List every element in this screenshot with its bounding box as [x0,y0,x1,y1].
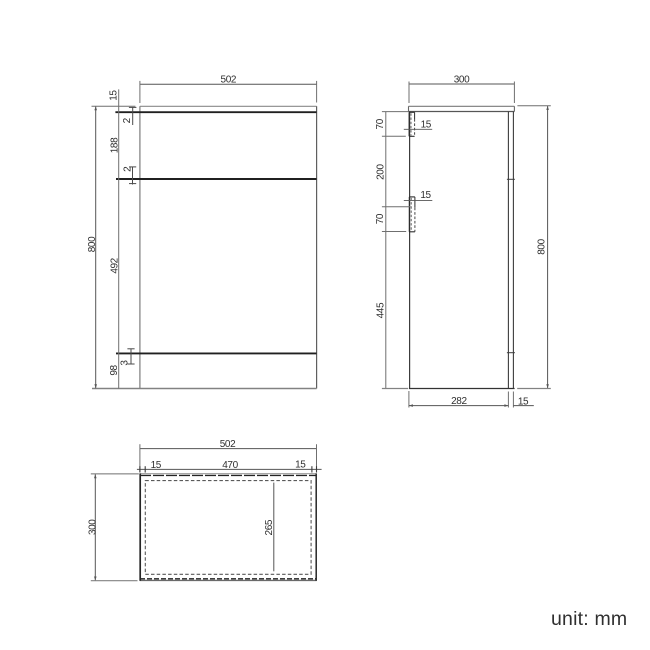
svg-text:70: 70 [375,213,386,224]
svg-text:3: 3 [120,360,131,366]
svg-text:800: 800 [537,238,548,254]
svg-text:282: 282 [451,396,467,407]
svg-text:502: 502 [221,75,237,86]
svg-text:188: 188 [109,137,120,153]
svg-text:15: 15 [421,120,432,131]
svg-text:2: 2 [122,117,133,123]
svg-text:492: 492 [109,257,120,273]
svg-text:2: 2 [123,166,134,172]
svg-text:800: 800 [87,236,98,252]
svg-text:502: 502 [220,439,236,450]
svg-text:200: 200 [375,164,386,180]
svg-text:15: 15 [420,190,431,201]
svg-text:unit: mm: unit: mm [551,608,627,630]
svg-text:70: 70 [375,118,386,129]
svg-text:15: 15 [295,459,306,470]
svg-text:300: 300 [454,74,470,85]
svg-text:470: 470 [222,460,238,471]
svg-text:265: 265 [264,519,275,535]
svg-text:15: 15 [151,460,162,471]
svg-text:15: 15 [108,90,119,101]
svg-text:98: 98 [109,365,120,376]
svg-text:15: 15 [518,396,529,407]
svg-text:445: 445 [375,302,386,318]
svg-text:300: 300 [87,519,98,535]
